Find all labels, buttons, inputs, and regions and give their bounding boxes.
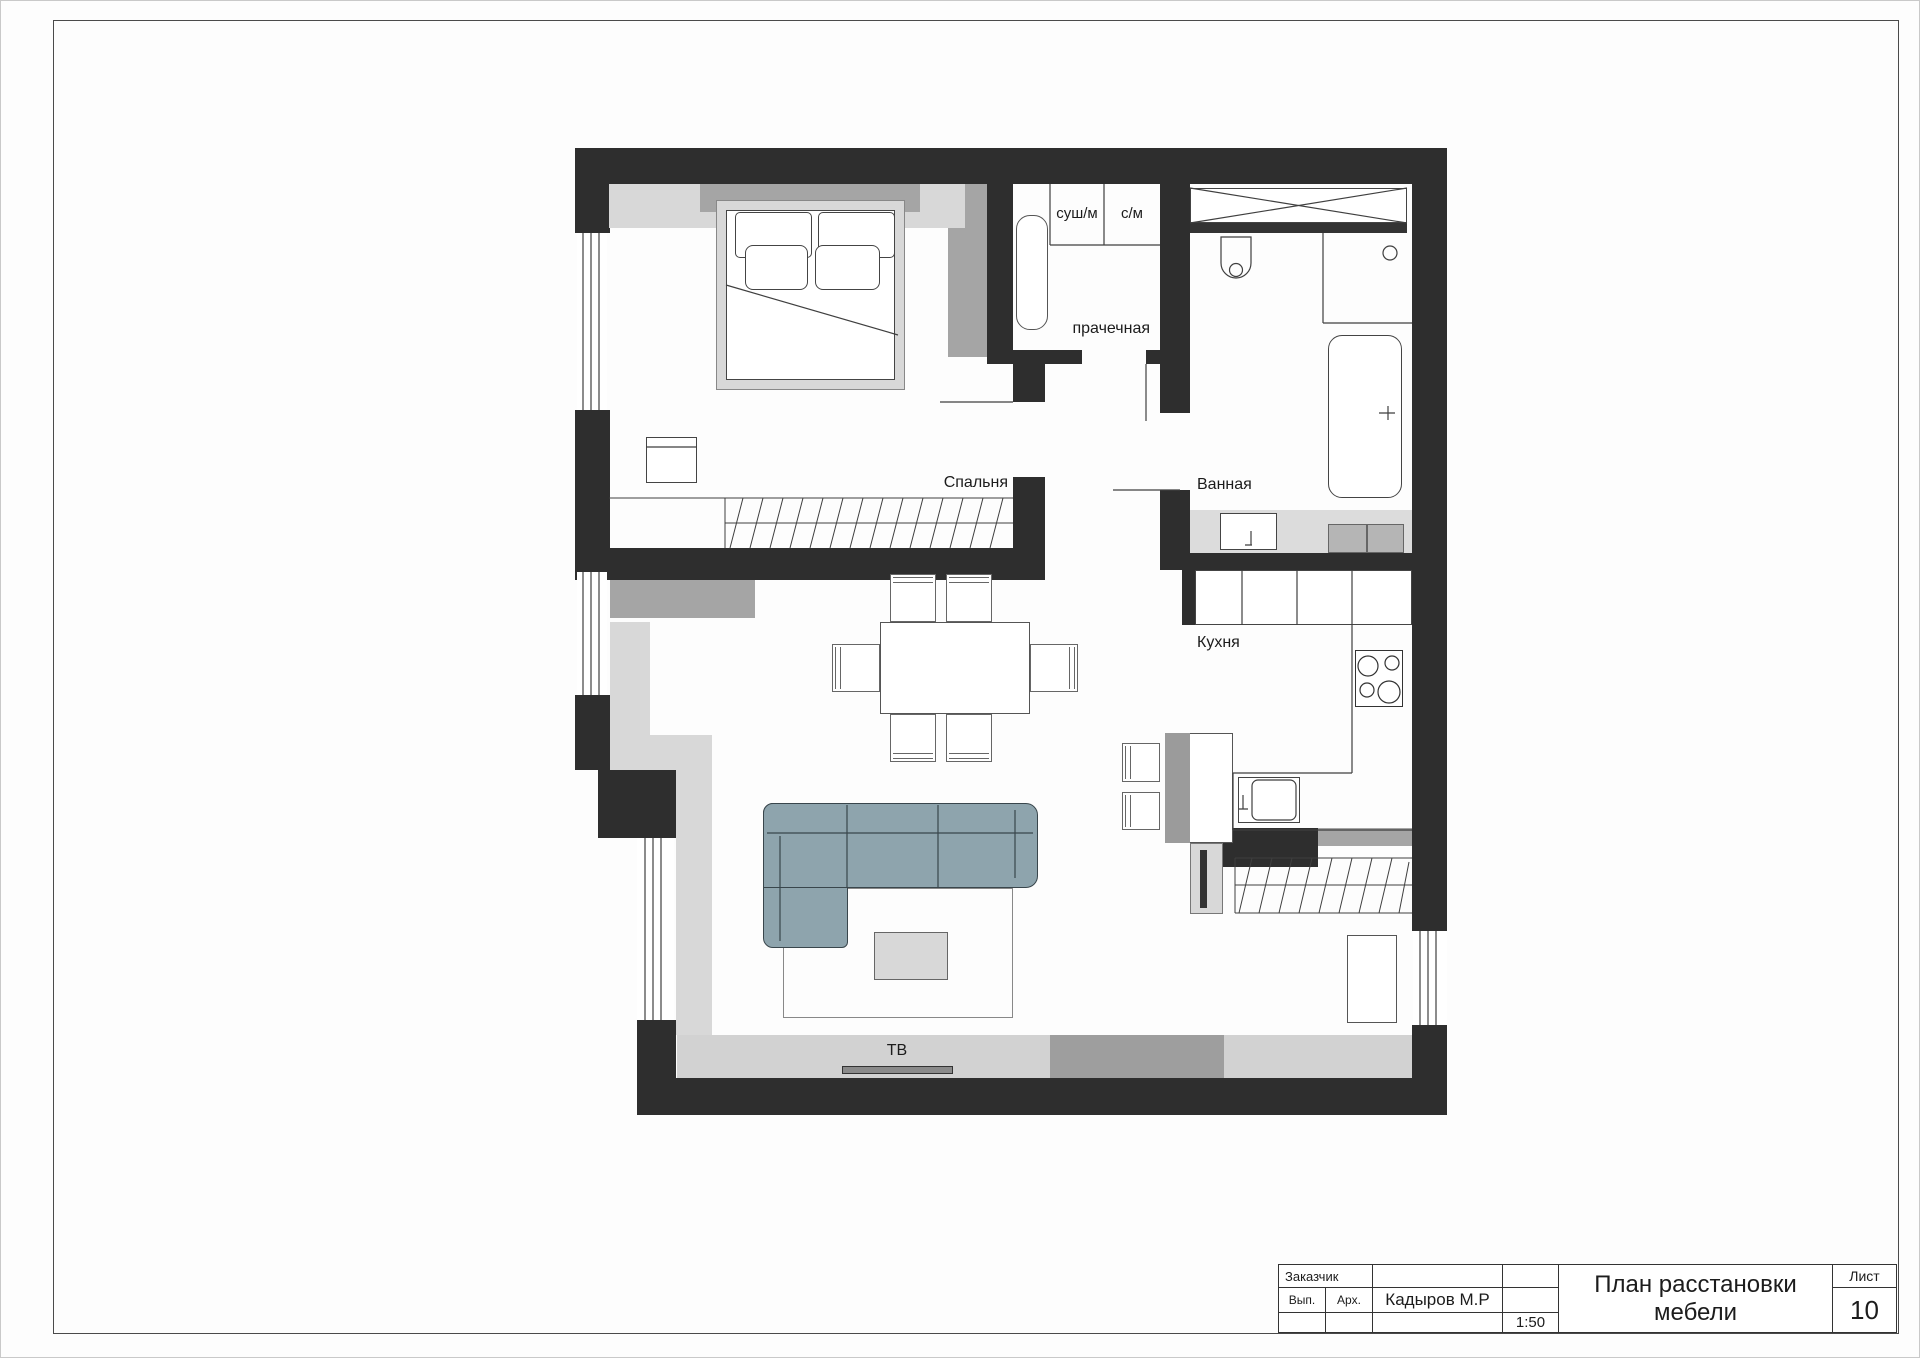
- bathtub: [1328, 335, 1402, 498]
- wall-bath-left-a: [1160, 364, 1190, 413]
- bath-sink: [1220, 513, 1277, 550]
- sheet-number-cell: 10: [1832, 1287, 1897, 1333]
- dining-chair-4: [1030, 644, 1078, 692]
- kitchen-upper-cabinets: [1195, 570, 1412, 625]
- bath-washer-left: [1328, 524, 1367, 553]
- window-right: [1413, 931, 1447, 1025]
- wall-bath-bottom: [1160, 553, 1412, 570]
- bathroom-label: Ванная: [1197, 476, 1252, 494]
- bedroom-wardrobe-hatch: [609, 498, 1013, 548]
- wall-bedroom-right-a: [1013, 364, 1045, 402]
- kitchen-bar-gray: [1165, 733, 1190, 843]
- dining-chair-5: [890, 714, 936, 762]
- customer-label: Заказчик: [1285, 1269, 1338, 1284]
- architect-name: Кадыров М.Р: [1385, 1290, 1489, 1310]
- bath-basin-counter: [1323, 233, 1412, 323]
- arch-cell: Арх.: [1325, 1287, 1373, 1313]
- bed-pillow-small-right: [815, 245, 880, 290]
- wall-top: [575, 148, 1447, 184]
- scale-cell: 1:50: [1502, 1312, 1559, 1333]
- architect-name-cell: Кадыров М.Р: [1372, 1287, 1503, 1313]
- tv-label: ТВ: [867, 1042, 927, 1060]
- drawing-title-cell: План расстановки мебели: [1558, 1264, 1833, 1333]
- bath-cabinet-x: [1190, 188, 1407, 223]
- exec-label: Вып.: [1289, 1293, 1315, 1307]
- window-left-bottom: [637, 838, 674, 1020]
- window-left-lower: [577, 572, 607, 695]
- bedroom-label: Спальня: [905, 474, 1008, 492]
- dryer-label: суш/м: [1050, 205, 1104, 222]
- toilet: [1221, 237, 1251, 278]
- empty-cell-5: [1325, 1312, 1373, 1333]
- bath-shelf-band: [1190, 223, 1407, 233]
- tv-set: [842, 1066, 953, 1074]
- wall-bottom: [637, 1078, 1447, 1115]
- wall-bath-left-upper: [1160, 184, 1190, 364]
- coffee-table: [874, 932, 948, 980]
- ironing-board: [1016, 215, 1048, 330]
- exec-cell: Вып.: [1278, 1287, 1326, 1313]
- sheet-label: Лист: [1849, 1268, 1879, 1284]
- kitchen-hob: [1355, 650, 1403, 707]
- dining-chair-2: [946, 574, 992, 622]
- left-cabinet-strip-a: [610, 622, 650, 735]
- wall-bath-left-b: [1160, 490, 1190, 553]
- floor-plan: Спальня суш/м с/м прачечная Ванная Кухня: [575, 148, 1447, 1115]
- drawing-title: План расстановки мебели: [1559, 1271, 1832, 1327]
- wall-laundry-bottom-a: [987, 350, 1082, 364]
- dining-chair-3: [832, 644, 880, 692]
- tv-console-right: [1224, 1035, 1412, 1078]
- kitchen-sink: [1238, 777, 1300, 823]
- sheet-number: 10: [1850, 1295, 1879, 1326]
- dining-chair-1: [890, 574, 936, 622]
- left-cabinet-column-c: [676, 770, 712, 1035]
- kitchen-label: Кухня: [1197, 634, 1240, 652]
- closet-gray-band: [1318, 828, 1412, 846]
- bar-stool-2: [1122, 792, 1160, 830]
- empty-cell-4: [1278, 1312, 1326, 1333]
- customer-cell: Заказчик: [1278, 1264, 1373, 1288]
- wall-right-1: [1412, 148, 1447, 931]
- tv-console-mid: [1050, 1035, 1224, 1078]
- drawing-sheet: Спальня суш/м с/м прачечная Ванная Кухня: [0, 0, 1920, 1358]
- window-left-upper: [577, 233, 607, 410]
- empty-cell-1: [1372, 1264, 1503, 1288]
- bar-stool-1: [1122, 743, 1160, 782]
- sideboard: [610, 580, 755, 618]
- washer-label: с/м: [1104, 205, 1160, 222]
- closet-mirror-slot: [1200, 850, 1207, 908]
- dining-table: [880, 622, 1030, 714]
- wall-right-2: [1412, 1025, 1447, 1115]
- left-cabinet-band-b: [610, 735, 712, 770]
- wall-laundry-left: [987, 184, 1013, 364]
- scale-value: 1:50: [1516, 1314, 1545, 1331]
- arch-label: Арх.: [1337, 1293, 1361, 1307]
- wall-left-3: [575, 695, 610, 770]
- empty-cell-6: [1372, 1312, 1503, 1333]
- empty-cell-2: [1502, 1264, 1559, 1288]
- console-desk: [1347, 935, 1397, 1023]
- empty-cell-3: [1502, 1287, 1559, 1313]
- wall-closet-stub: [1223, 828, 1318, 867]
- sofa-back: [763, 803, 1038, 888]
- wall-left-corner-block: [598, 770, 676, 838]
- wall-bedroom-right-b: [1013, 477, 1045, 548]
- nightstand: [646, 437, 697, 483]
- dining-chair-6: [946, 714, 992, 762]
- bath-washer-right: [1367, 524, 1404, 553]
- bed-pillow-small-left: [745, 245, 808, 290]
- sheet-label-cell: Лист: [1832, 1264, 1897, 1288]
- wall-kitchen-stub: [1182, 570, 1195, 625]
- wall-left-1: [575, 148, 610, 233]
- laundry-label: прачечная: [1035, 320, 1150, 338]
